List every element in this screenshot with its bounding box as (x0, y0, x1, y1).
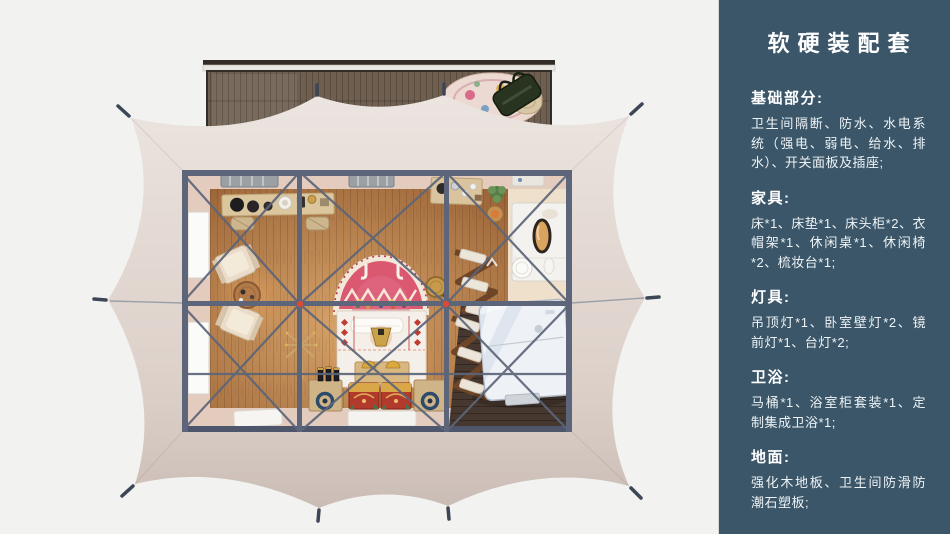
panel-title: 软硬装配套 (751, 26, 926, 58)
vanity-mirror (534, 220, 550, 252)
slide: 软硬装配套 基础部分: 卫生间隔断、防水、水电系统（强电、弱电、给水、排水）、开… (0, 0, 950, 534)
section-furniture: 家具: 床*1、床垫*1、床头柜*2、衣帽架*1、休闲桌*1、休闲椅*2、梳妆台… (751, 189, 926, 273)
section-heading: 基础部分: (751, 89, 926, 109)
floorplan-area (0, 0, 718, 534)
section-lighting: 灯具: 吊顶灯*1、卧室壁灯*2、镜前灯*1、台灯*2; (751, 288, 926, 352)
ceiling-vent (349, 175, 394, 187)
nightstand (414, 380, 447, 411)
section-body: 卫生间隔断、防水、水电系统（强电、弱电、给水、排水）、开关面板及插座; (751, 114, 926, 173)
tea-table (431, 177, 483, 205)
section-flooring: 地面: 强化木地板、卫生间防滑防潮石塑板; (751, 448, 926, 512)
tent-stake (448, 508, 449, 519)
section-basics: 基础部分: 卫生间隔断、防水、水电系统（强电、弱电、给水、排水）、开关面板及插座… (751, 89, 926, 173)
tent-stake (647, 297, 659, 298)
tent-stake (94, 299, 106, 300)
door-mat (348, 411, 416, 426)
section-heading: 灯具: (751, 288, 926, 308)
door-mat (234, 409, 283, 427)
painted-chest (349, 383, 379, 409)
section-body: 强化木地板、卫生间防滑防潮石塑板; (751, 473, 926, 512)
section-body: 吊顶灯*1、卧室壁灯*2、镜前灯*1、台灯*2; (751, 313, 926, 352)
truss-joint (443, 301, 449, 307)
section-bathroom: 卫浴: 马桶*1、浴室柜套装*1、定制集成卫浴*1; (751, 368, 926, 432)
section-heading: 家具: (751, 189, 926, 209)
section-heading: 卫浴: (751, 368, 926, 388)
section-body: 床*1、床垫*1、床头柜*2、衣帽架*1、休闲桌*1、休闲椅*2、梳妆台*1; (751, 214, 926, 273)
section-heading: 地面: (751, 448, 926, 468)
section-body: 马桶*1、浴室柜套装*1、定制集成卫浴*1; (751, 393, 926, 432)
nightstand (309, 380, 342, 411)
truss-joint (297, 301, 303, 307)
floorplan-render (0, 0, 718, 534)
foot-bench (355, 361, 409, 383)
towel (544, 258, 554, 274)
side-window (188, 212, 209, 278)
side-window (188, 322, 209, 394)
side-panel: 软硬装配套 基础部分: 卫生间隔断、防水、水电系统（强电、弱电、给水、排水）、开… (718, 0, 950, 534)
tent-stake (318, 510, 319, 521)
